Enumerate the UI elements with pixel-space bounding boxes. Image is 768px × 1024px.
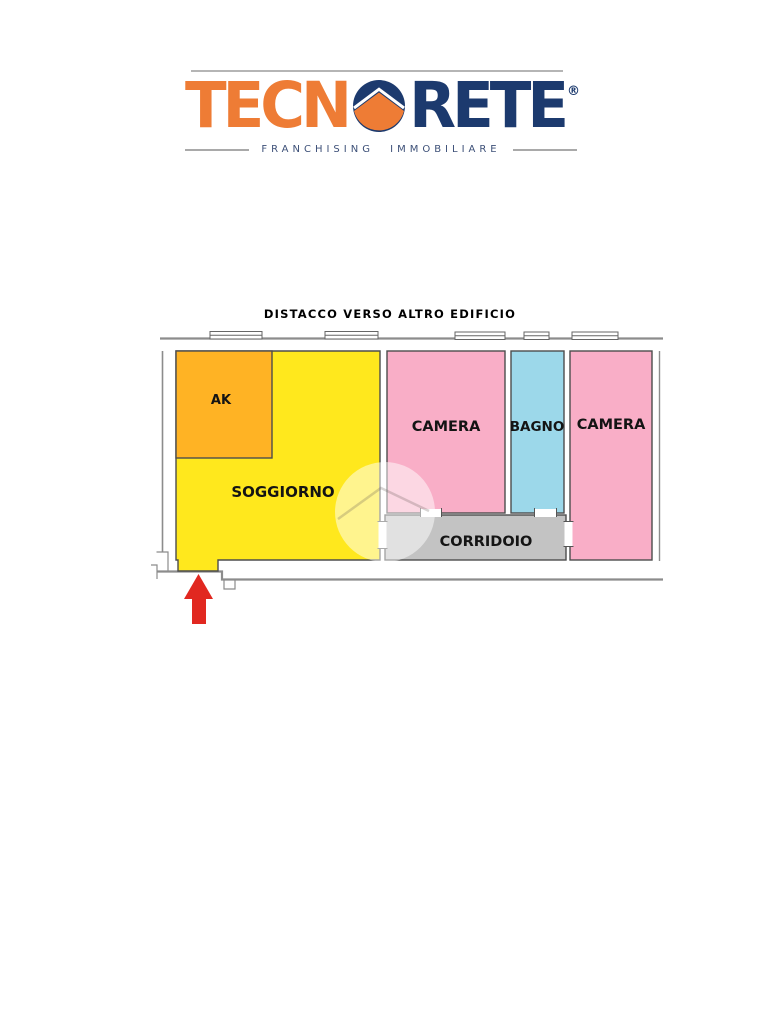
door-camera-2 [565,521,573,547]
window-symbol [572,332,618,340]
tecnorete-logo: TECN RETE ® FRANCHISING IMMOBILIARE [185,70,577,155]
logo-text-tecn: TECN [185,73,348,140]
window-symbol [524,332,549,340]
tagline-left-rule [185,149,249,151]
logo-text-rete: RETE [409,73,565,140]
window-symbol [210,332,262,340]
tagline-right-rule [513,149,577,151]
logo-wordmark: TECN RETE ® [185,74,577,138]
left-wall-step [157,552,169,572]
registered-mark: ® [567,84,580,99]
door-bagno [534,509,557,517]
label-camera-2: CAMERA [577,417,646,433]
entrance-arrow [184,574,213,624]
logo-house-icon [352,79,406,133]
label-ak: AK [211,393,232,408]
flyer-page: TECN RETE ® FRANCHISING IMMOBILIARE DIST… [0,0,768,1024]
label-bagno: BAGNO [510,419,565,435]
label-soggiorno: SOGGIORNO [231,483,334,501]
bottom-wall-foot [224,580,235,589]
plan-caption: DISTACCO VERSO ALTRO EDIFICIO [264,307,516,321]
left-wall-tick [151,565,157,579]
floor-plan-svg: DISTACCO VERSO ALTRO EDIFICIO [150,296,675,641]
room-camera-2 [570,351,652,560]
tagline-text: FRANCHISING IMMOBILIARE [261,144,500,155]
window-symbol [325,332,378,340]
window-symbol [455,332,505,340]
watermark-house-icon [335,462,435,562]
floor-plan: DISTACCO VERSO ALTRO EDIFICIO [150,296,675,641]
logo-tagline: FRANCHISING IMMOBILIARE [185,144,577,155]
bottom-wall [157,572,663,580]
label-corridoio: CORRIDOIO [440,534,533,550]
label-camera-1: CAMERA [412,419,481,435]
